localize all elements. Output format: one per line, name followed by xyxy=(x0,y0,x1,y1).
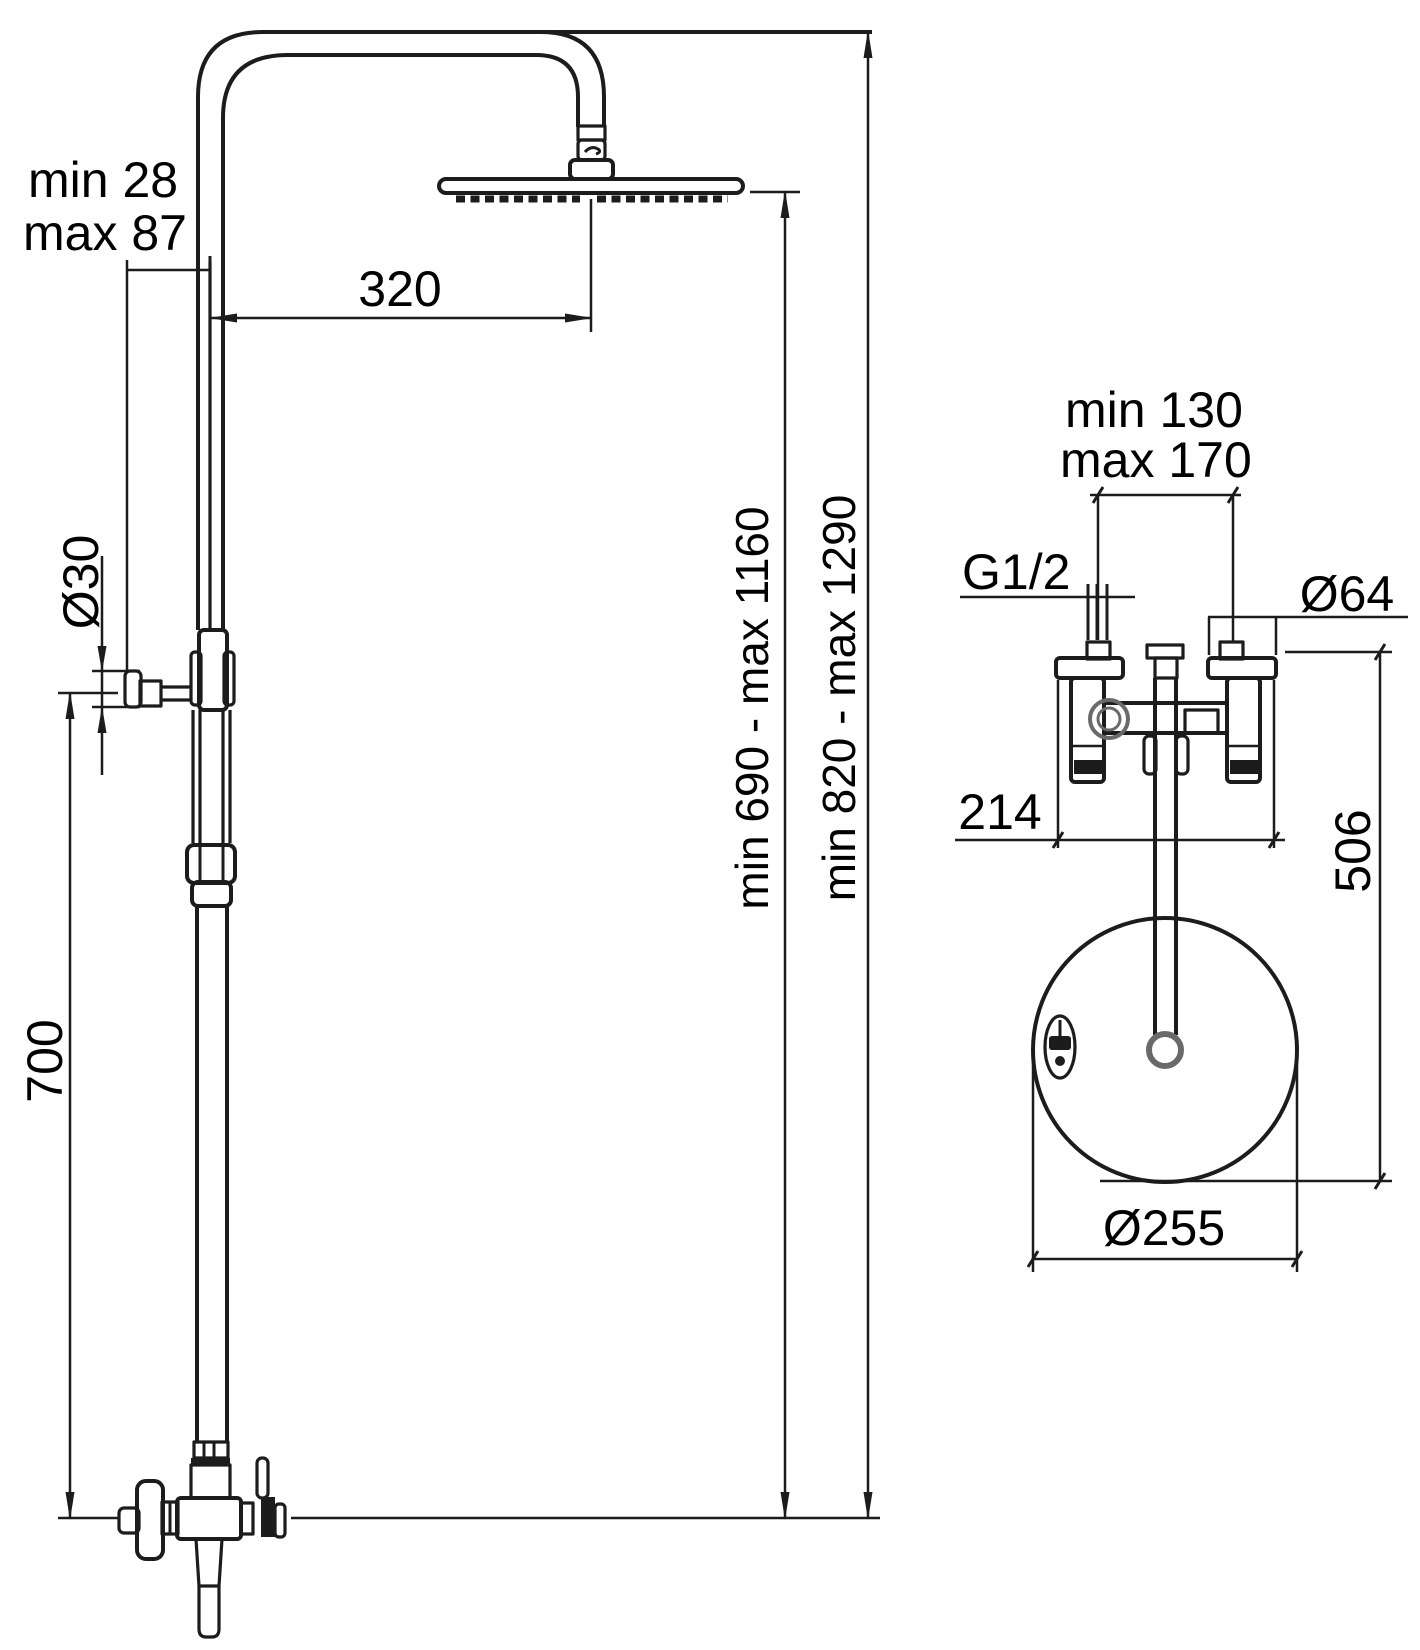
bracket-arm xyxy=(160,687,192,700)
label-head-diameter: Ø255 xyxy=(1103,1200,1225,1256)
label-body-width: 214 xyxy=(958,784,1041,840)
arrow-down-inner xyxy=(781,1492,790,1520)
head-circle xyxy=(1033,918,1297,1182)
dim-head-diameter: Ø255 xyxy=(1028,1055,1302,1272)
arrow-down xyxy=(98,646,107,672)
head-top-view xyxy=(1033,918,1297,1182)
pipe-union xyxy=(187,710,235,1442)
arrow-down-outer xyxy=(864,1492,873,1520)
arm-inner-line xyxy=(223,55,536,630)
arrow-down xyxy=(66,1492,75,1520)
front-view: min 28 max 87 320 Ø30 700 xyxy=(17,30,880,1637)
arrow-up-outer xyxy=(864,30,873,58)
bracket-cylinder xyxy=(140,681,161,706)
right-body-band xyxy=(1230,760,1258,774)
arrow-up-inner xyxy=(781,190,790,218)
outlet-taper xyxy=(196,1539,222,1586)
label-head-projection: 506 xyxy=(1325,809,1381,892)
center-fitting-cap xyxy=(1147,645,1183,658)
union-nut-lines xyxy=(200,845,223,883)
ribbed-connector xyxy=(194,1442,228,1458)
wall-bracket xyxy=(125,630,234,710)
union-collar xyxy=(192,882,231,906)
label-inlet-spacing-min: min 130 xyxy=(1065,382,1243,438)
label-wall-clearance-max: max 87 xyxy=(23,205,187,261)
arm-drop-left xyxy=(536,55,578,127)
union-nut xyxy=(187,845,235,883)
hand-shower-outlet xyxy=(199,1586,219,1637)
ball-joint xyxy=(578,140,605,160)
shower-technical-drawing: min 28 max 87 320 Ø30 700 xyxy=(0,0,1420,1650)
head-nut xyxy=(578,126,605,140)
right-cap xyxy=(275,1504,285,1537)
upper-tube-walls xyxy=(193,710,230,845)
label-arm-projection: 320 xyxy=(358,261,441,317)
valve-neck xyxy=(191,1465,230,1498)
crossbar-block xyxy=(1185,710,1218,733)
dim-arm-projection: 320 xyxy=(209,199,593,332)
label-escutcheon-diameter: Ø64 xyxy=(1300,566,1395,622)
label-inlet-thread: G1/2 xyxy=(962,544,1070,600)
top-view: min 130 max 170 G1/2 Ø64 214 506 xyxy=(955,382,1408,1272)
arrow-up xyxy=(66,691,75,719)
inlet-spacing-extensions xyxy=(1098,495,1233,643)
valve-body xyxy=(177,1498,241,1539)
left-inlet-flange xyxy=(1056,658,1123,678)
shower-head xyxy=(439,126,743,199)
mixer-valve xyxy=(119,1442,285,1637)
dim-inlet-thread: G1/2 xyxy=(960,544,1135,600)
head-flange xyxy=(570,160,613,179)
technical-drawing-page: min 28 max 87 320 Ø30 700 xyxy=(0,0,1420,1650)
ball-joint-mark xyxy=(585,148,600,154)
label-overall-height-range: min 820 - max 1290 xyxy=(813,495,865,902)
label-inlet-spacing-max: max 170 xyxy=(1060,432,1252,488)
dim-lower-riser: 700 xyxy=(17,691,118,1520)
lower-riser xyxy=(197,906,227,1442)
dim-head-projection: 506 xyxy=(1100,644,1392,1189)
label-bracket-diameter: Ø30 xyxy=(53,535,109,630)
left-body-band xyxy=(1074,760,1102,774)
label-wall-clearance-min: min 28 xyxy=(28,152,178,208)
arrow-up xyxy=(98,706,107,733)
head-plate xyxy=(439,179,743,193)
diverter-dot xyxy=(1055,1056,1065,1066)
left-knob xyxy=(137,1481,163,1559)
center-hub xyxy=(1149,1034,1181,1066)
right-inlet-flange xyxy=(1208,658,1276,678)
inlet-connectors xyxy=(1056,584,1276,782)
center-fitting-stem xyxy=(1155,658,1177,678)
dim-wall-clearance: min 28 max 87 xyxy=(23,152,210,671)
bracket-leaders xyxy=(92,671,140,707)
connector-ribs xyxy=(204,1442,214,1458)
diverter-bar xyxy=(1049,1036,1071,1050)
arrow-right xyxy=(565,314,593,323)
arm-drop-right xyxy=(541,32,604,127)
label-head-height-range: min 690 - max 1160 xyxy=(726,506,778,909)
right-band xyxy=(261,1497,275,1537)
lever-handle xyxy=(257,1458,268,1498)
knob-inner-circle xyxy=(1098,708,1120,730)
label-lower-riser: 700 xyxy=(17,1019,73,1102)
